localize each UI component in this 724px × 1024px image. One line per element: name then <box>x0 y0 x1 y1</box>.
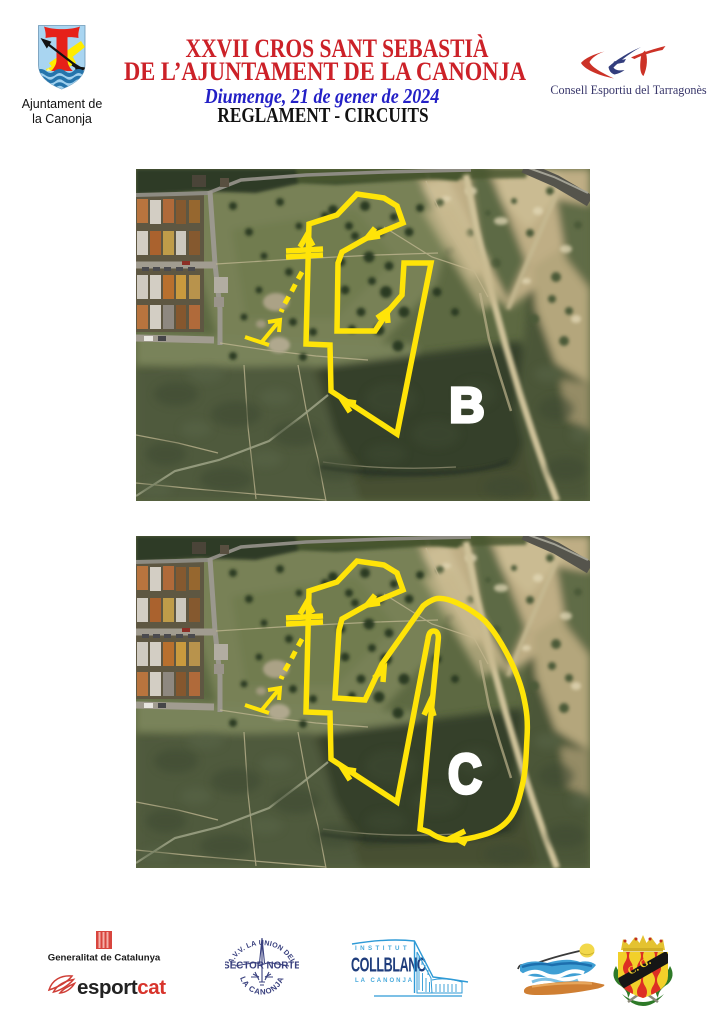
svg-text:LA CANONJA: LA CANONJA <box>355 978 414 984</box>
svg-text:Generalitat de Catalunya: Generalitat de Catalunya <box>48 953 161 964</box>
svg-text:B: B <box>449 379 484 433</box>
svg-text:C: C <box>448 742 482 805</box>
svg-text:INSTITUT: INSTITUT <box>355 945 410 952</box>
svg-text:Consell Esportiu del Tarragonè: Consell Esportiu del Tarragonès <box>550 83 707 97</box>
svg-text:SECTOR NORTE: SECTOR NORTE <box>225 961 299 972</box>
svg-text:esportcat: esportcat <box>77 976 166 999</box>
